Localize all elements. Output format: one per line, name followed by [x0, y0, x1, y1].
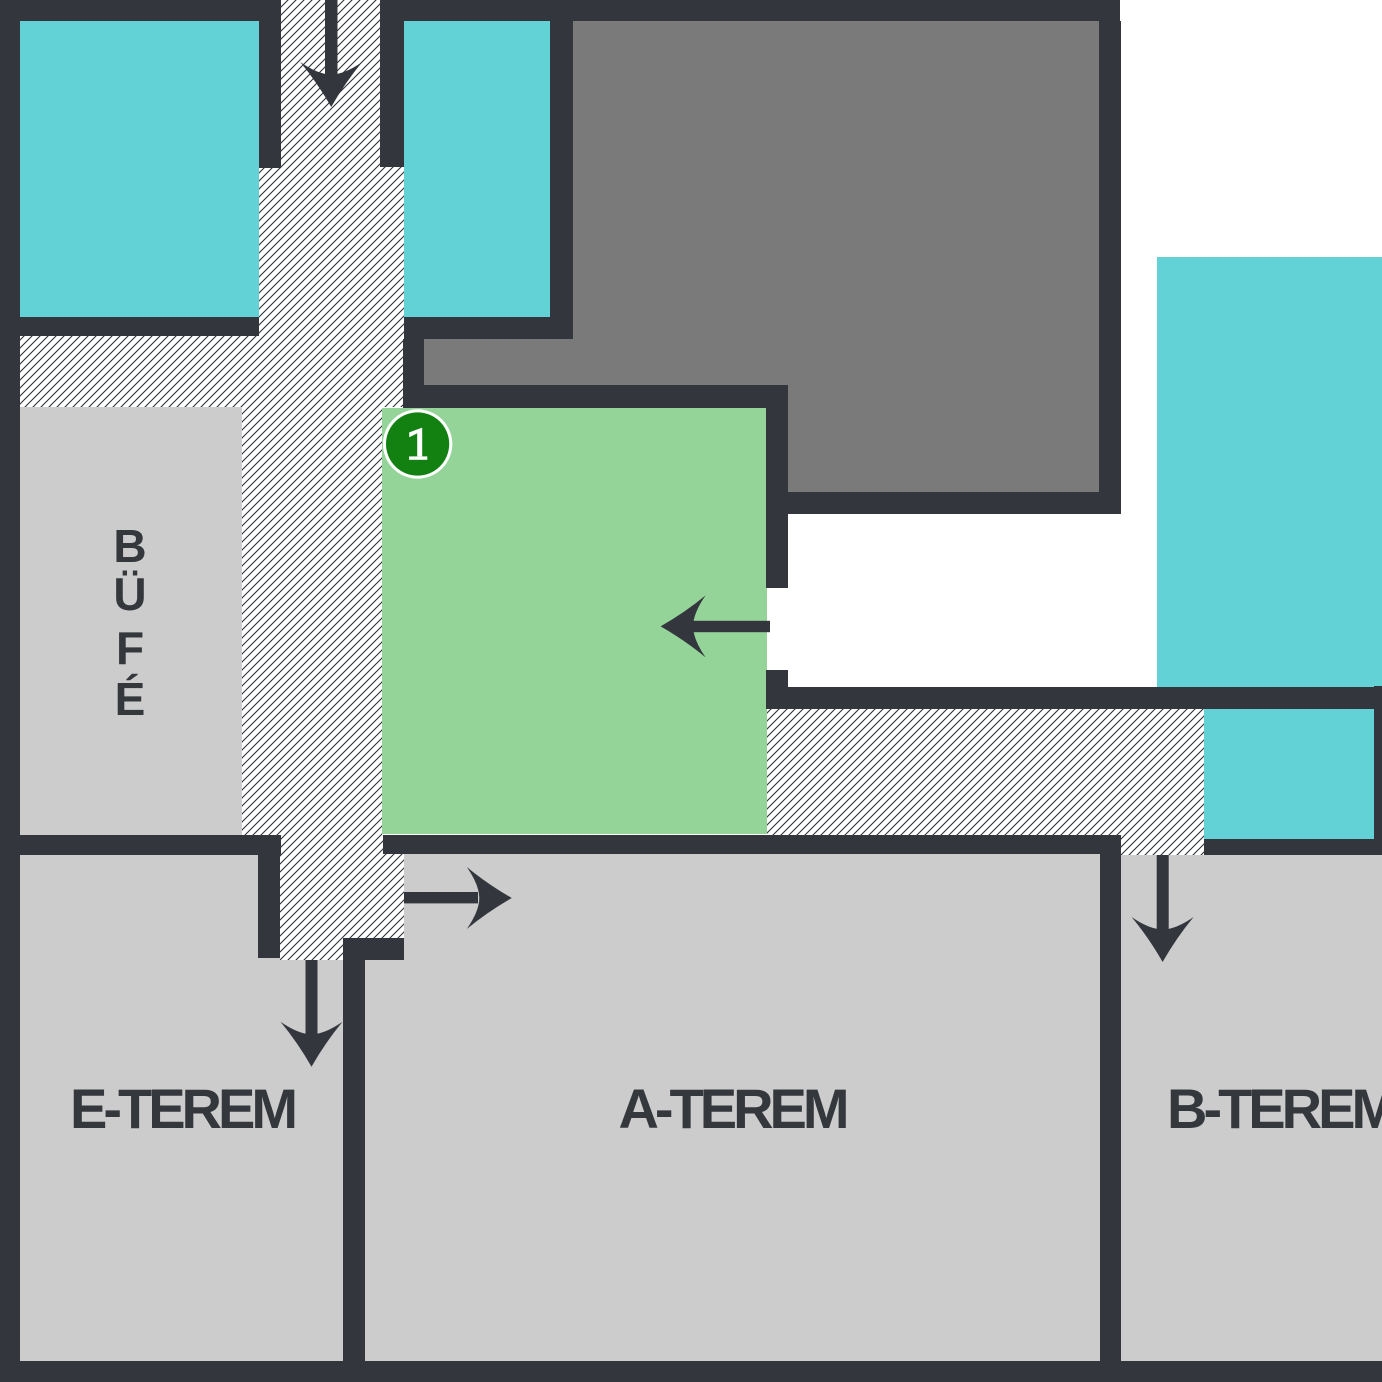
svg-text:É: É [115, 673, 146, 725]
svg-text:Ü: Ü [113, 568, 146, 620]
svg-text:A-TEREM: A-TEREM [618, 1077, 845, 1140]
svg-text:B-TEREM: B-TEREM [1167, 1077, 1382, 1140]
svg-text:E-TEREM: E-TEREM [70, 1077, 294, 1140]
svg-text:B: B [113, 520, 146, 572]
svg-text:F: F [116, 622, 144, 674]
